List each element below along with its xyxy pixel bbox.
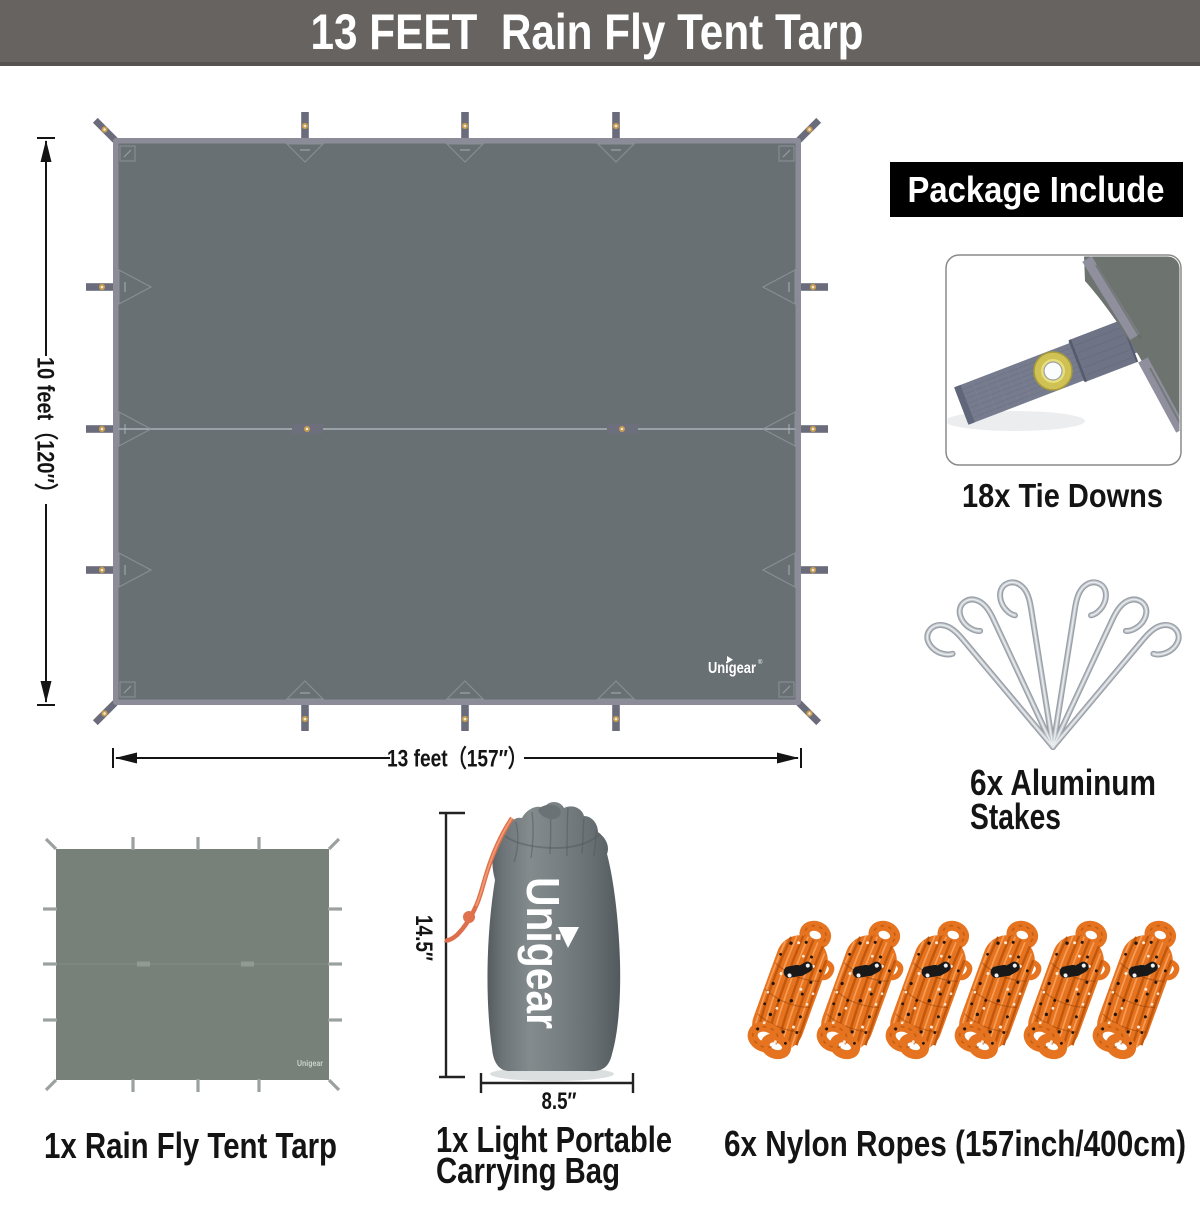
svg-text:Unigear: Unigear [297, 1058, 324, 1068]
svg-text:Carrying Bag: Carrying Bag [436, 1150, 620, 1191]
svg-text:14.5″: 14.5″ [410, 915, 437, 961]
svg-text:Unigear: Unigear [708, 660, 756, 677]
svg-text:®: ® [758, 659, 763, 666]
svg-text:Stakes: Stakes [970, 796, 1061, 837]
svg-text:6x Nylon Ropes (157inch/400cm): 6x Nylon Ropes (157inch/400cm) [724, 1123, 1186, 1164]
svg-text:1x Rain Fly Tent Tarp: 1x Rain Fly Tent Tarp [44, 1125, 337, 1166]
svg-text:Package Include: Package Include [908, 169, 1165, 210]
svg-text:18x Tie Downs: 18x Tie Downs [962, 477, 1163, 514]
svg-text:13 FEET Rain Fly Tent Tarp: 13 FEET Rain Fly Tent Tarp [311, 4, 864, 60]
svg-text:10 feet（120″）: 10 feet（120″） [32, 357, 59, 503]
svg-text:8.5″: 8.5″ [542, 1088, 577, 1115]
svg-text:Unigear: Unigear [517, 877, 569, 1029]
svg-text:13 feet（157″）: 13 feet（157″） [387, 746, 527, 773]
